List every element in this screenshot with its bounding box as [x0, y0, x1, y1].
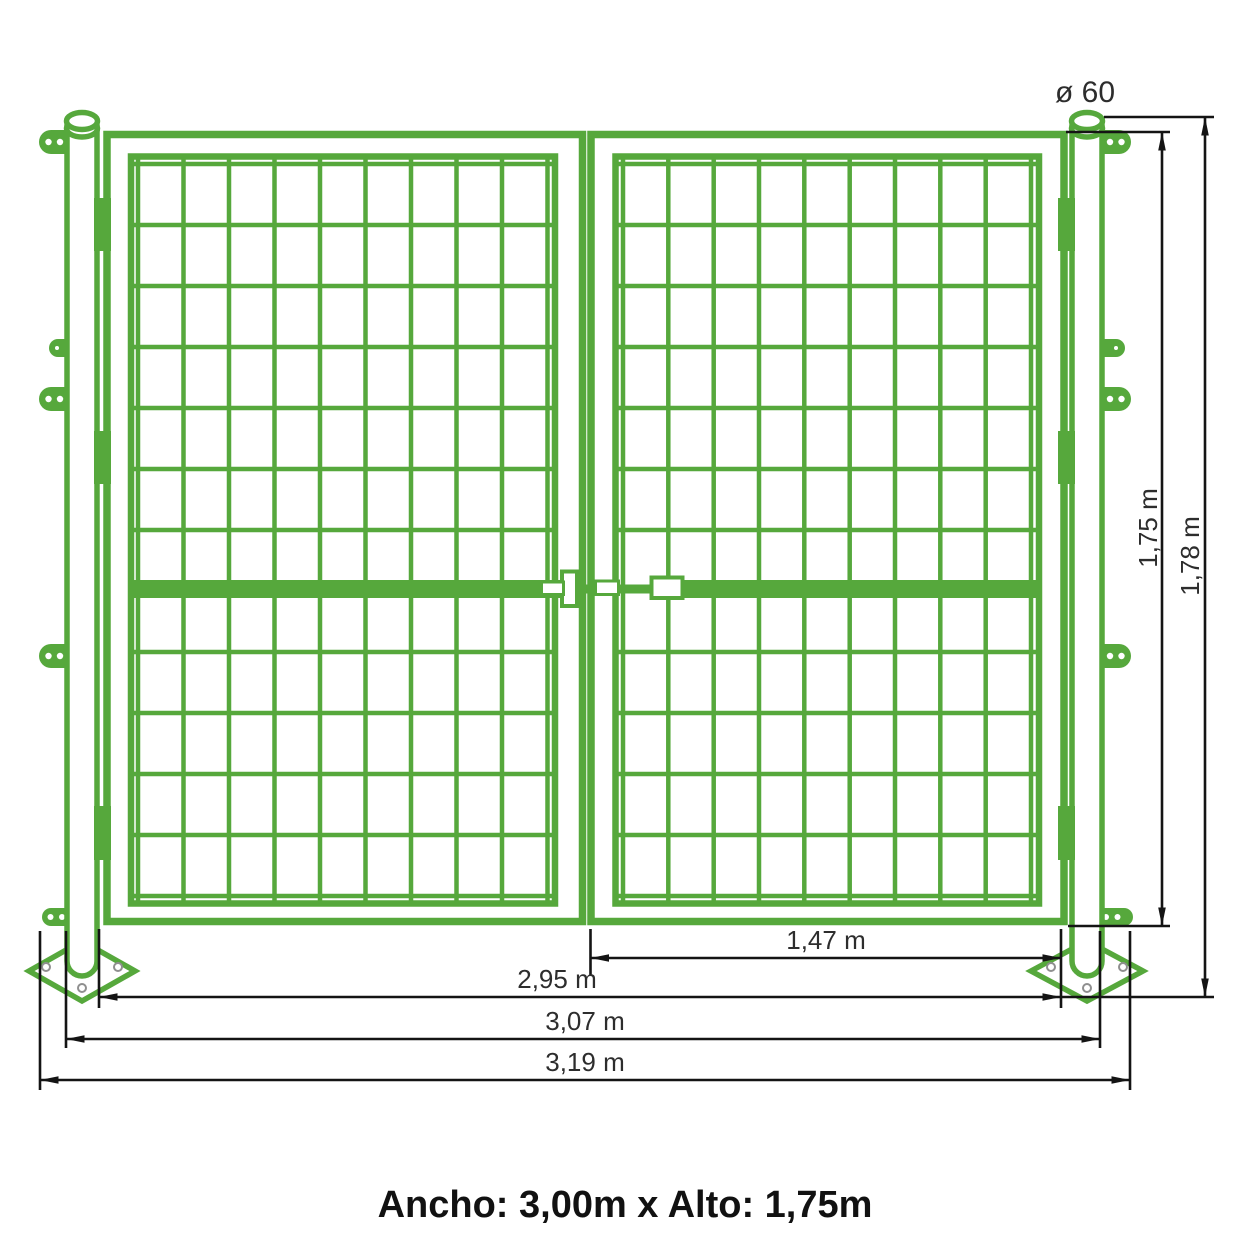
right-post — [1058, 113, 1133, 977]
double-gate-technical-drawing: ø 60 1,47 m 2,95 m 3,07 m 3,19 m 1,75 m … — [0, 0, 1250, 1250]
right-post-tube — [1072, 127, 1102, 976]
post-height-label: 1,78 m — [1175, 516, 1205, 596]
right-mesh-horizontal-wires — [614, 164, 1040, 896]
left-post — [39, 113, 111, 977]
size-caption: Ancho: 3,00m x Alto: 1,75m — [378, 1184, 873, 1226]
latch-plate-middle — [596, 581, 619, 595]
gate-height-label: 1,75 m — [1133, 488, 1163, 568]
right-mid-rail — [682, 580, 1042, 598]
left-post-cap-top — [67, 113, 98, 130]
outer-post-width-label: 3,07 m — [545, 1006, 625, 1036]
leaf-width-label: 1,47 m — [786, 925, 866, 955]
left-post-tube — [67, 127, 97, 976]
latch-plate-left — [542, 582, 564, 595]
latch-lock-box — [652, 578, 683, 599]
left-mesh-horizontal-wires — [130, 164, 556, 896]
right-gate-leaf — [591, 135, 1064, 922]
total-width-label: 3,19 m — [545, 1047, 625, 1077]
clear-width-label: 2,95 m — [517, 964, 597, 994]
post-diameter-label: ø 60 — [1055, 76, 1115, 109]
right-post-cap-top — [1072, 113, 1103, 130]
gate-diagram: ø 60 1,47 m 2,95 m 3,07 m 3,19 m 1,75 m … — [0, 0, 1250, 1250]
left-gate-leaf — [107, 135, 583, 922]
left-mid-rail — [128, 580, 560, 598]
